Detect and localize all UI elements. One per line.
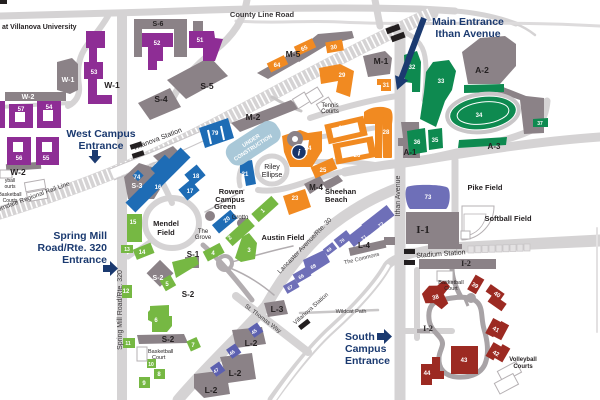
svg-text:W-1: W-1: [104, 80, 120, 90]
svg-text:A-1: A-1: [404, 148, 417, 157]
svg-text:29: 29: [339, 73, 346, 79]
svg-text:I-2: I-2: [461, 259, 471, 268]
svg-text:West Campus: West Campus: [66, 128, 135, 140]
svg-text:Grotto: Grotto: [232, 215, 249, 221]
svg-text:Spring Mill: Spring Mill: [53, 230, 107, 242]
svg-text:Austin Field: Austin Field: [262, 233, 305, 242]
svg-text:Court: Court: [152, 355, 166, 361]
svg-text:S-2: S-2: [153, 275, 164, 282]
svg-text:54: 54: [46, 105, 53, 111]
svg-text:Campus: Campus: [345, 343, 387, 355]
svg-text:74: 74: [134, 175, 141, 181]
svg-text:S-2: S-2: [182, 290, 195, 299]
svg-text:18: 18: [193, 174, 200, 180]
svg-text:M-5: M-5: [286, 49, 301, 59]
svg-text:79: 79: [212, 131, 219, 137]
svg-text:56: 56: [16, 156, 23, 162]
svg-text:S-1: S-1: [187, 250, 200, 259]
svg-text:A-3: A-3: [488, 142, 501, 151]
svg-text:M-4: M-4: [309, 183, 323, 192]
svg-text:57: 57: [18, 107, 25, 113]
svg-text:Ithan Avenue: Ithan Avenue: [395, 176, 402, 217]
svg-text:Ithan Avenue: Ithan Avenue: [435, 28, 500, 40]
svg-text:I-1: I-1: [416, 224, 429, 236]
svg-text:26: 26: [354, 153, 361, 159]
svg-text:55: 55: [43, 156, 50, 162]
svg-text:16: 16: [155, 185, 162, 191]
svg-text:53: 53: [91, 70, 98, 76]
svg-text:S-4: S-4: [154, 94, 168, 104]
svg-text:Volleyball: Volleyball: [509, 357, 537, 363]
svg-text:L-2: L-2: [205, 385, 218, 395]
svg-text:I-2: I-2: [423, 324, 433, 333]
svg-text:52: 52: [154, 41, 161, 47]
svg-text:South: South: [345, 331, 375, 343]
svg-text:County Line Road: County Line Road: [230, 10, 295, 19]
svg-text:15: 15: [130, 220, 137, 226]
svg-text:37: 37: [537, 121, 543, 127]
svg-text:Mendel: Mendel: [153, 219, 179, 228]
svg-text:Entrance: Entrance: [62, 254, 107, 266]
svg-text:L-2: L-2: [245, 338, 258, 348]
svg-text:Entrance: Entrance: [79, 140, 124, 152]
svg-text:43: 43: [461, 358, 468, 364]
svg-text:L-4: L-4: [358, 241, 371, 250]
svg-text:Field: Field: [157, 228, 175, 237]
svg-text:Spring Mill Road/Rte. 320: Spring Mill Road/Rte. 320: [117, 270, 124, 350]
svg-text:Beach: Beach: [325, 195, 348, 204]
svg-text:M-2: M-2: [246, 112, 261, 122]
svg-text:Wildcat Path: Wildcat Path: [336, 309, 367, 315]
svg-text:S-2: S-2: [162, 335, 175, 344]
svg-text:Ellipse: Ellipse: [262, 172, 283, 179]
svg-text:Court: Court: [444, 286, 458, 292]
svg-text:31: 31: [383, 83, 390, 89]
svg-text:23: 23: [292, 196, 299, 202]
svg-text:S-3: S-3: [132, 183, 143, 190]
svg-text:Pike Field: Pike Field: [467, 183, 502, 192]
svg-text:34: 34: [476, 113, 483, 119]
svg-text:S-5: S-5: [200, 81, 214, 91]
svg-text:Grove: Grove: [195, 235, 212, 241]
svg-text:Green: Green: [214, 202, 236, 211]
svg-text:L-2: L-2: [229, 368, 242, 378]
svg-text:11: 11: [125, 341, 131, 347]
svg-text:Softball Field: Softball Field: [484, 214, 532, 223]
svg-text:28: 28: [383, 130, 390, 136]
svg-text:W-2: W-2: [10, 167, 26, 177]
svg-text:44: 44: [424, 371, 431, 377]
svg-text:Riley: Riley: [264, 164, 280, 171]
svg-text:21: 21: [242, 172, 249, 178]
svg-text:at Villanova University: at Villanova University: [2, 24, 77, 31]
svg-text:33: 33: [438, 79, 445, 85]
svg-text:10: 10: [148, 362, 154, 368]
svg-text:27: 27: [339, 126, 346, 132]
svg-text:M-1: M-1: [374, 56, 389, 66]
svg-text:64: 64: [274, 63, 281, 69]
svg-text:W-1: W-1: [62, 77, 75, 84]
svg-text:Main Entrance: Main Entrance: [432, 16, 504, 28]
svg-text:32: 32: [409, 65, 416, 71]
svg-text:35: 35: [432, 138, 439, 144]
svg-text:51: 51: [197, 38, 204, 44]
svg-text:24: 24: [305, 146, 312, 152]
svg-text:W-2: W-2: [22, 94, 35, 101]
svg-text:L-3: L-3: [271, 304, 284, 314]
svg-text:17: 17: [187, 189, 194, 195]
svg-text:Road/Rte. 320: Road/Rte. 320: [38, 242, 108, 254]
svg-text:Courts: Courts: [513, 364, 533, 370]
svg-text:A-2: A-2: [475, 65, 489, 75]
svg-text:ourts: ourts: [4, 184, 16, 190]
svg-text:Entrance: Entrance: [345, 355, 390, 367]
svg-text:73: 73: [425, 195, 432, 201]
svg-text:13: 13: [124, 247, 130, 253]
svg-text:S-6: S-6: [153, 21, 164, 28]
svg-text:Courts: Courts: [321, 109, 339, 115]
svg-text:36: 36: [414, 140, 421, 146]
svg-text:14: 14: [139, 250, 146, 256]
svg-text:25: 25: [320, 168, 327, 174]
